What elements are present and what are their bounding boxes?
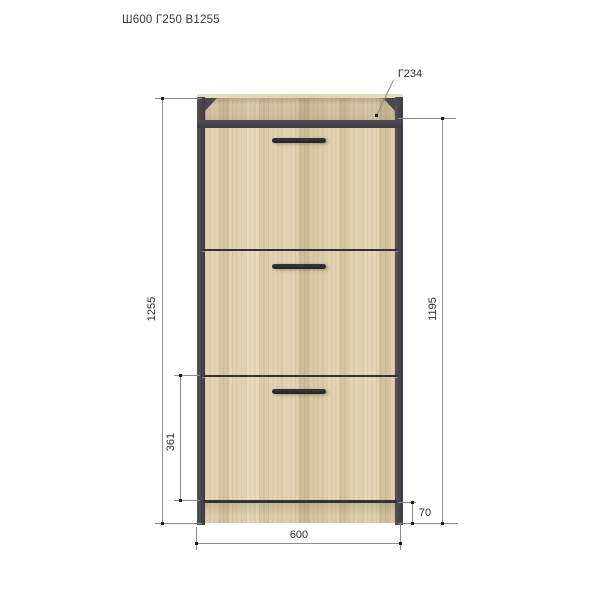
dim-label-total-height: 1255 xyxy=(146,289,158,329)
dim-label-front-height: 1195 xyxy=(427,289,439,329)
ext-line-width-right xyxy=(400,524,401,550)
door-handle-1 xyxy=(272,138,326,143)
dim-line-total-height xyxy=(162,98,163,524)
top-shelf-niche xyxy=(205,98,395,120)
ext-line-section-bottom xyxy=(174,500,200,501)
dim-tick xyxy=(399,542,402,545)
leader-arrow-dot xyxy=(375,114,378,117)
dim-tick xyxy=(411,522,414,525)
dim-label-plinth: 70 xyxy=(410,507,440,519)
dim-tick xyxy=(179,499,182,502)
dim-line-width xyxy=(196,543,401,544)
door-handle-2 xyxy=(272,264,326,269)
top-rail xyxy=(197,120,403,128)
dim-label-bottom-section: 361 xyxy=(165,422,177,462)
dim-tick xyxy=(411,501,414,504)
flip-door-3 xyxy=(205,377,395,500)
dim-tick xyxy=(161,522,164,525)
drawing-title: Ш600 Г250 В1255 xyxy=(122,14,220,26)
ext-line-section-top xyxy=(174,375,200,376)
niche-corner-left xyxy=(205,98,217,111)
niche-corner-right xyxy=(383,98,395,111)
dim-tick xyxy=(179,374,182,377)
flip-door-1 xyxy=(205,128,395,249)
dim-line-bottom-section xyxy=(180,375,181,501)
dim-tick xyxy=(441,117,444,120)
dim-tick xyxy=(441,522,444,525)
flip-door-2 xyxy=(205,251,395,375)
ext-line-width-left xyxy=(196,527,197,550)
dim-label-top-depth: Г234 xyxy=(393,68,427,80)
dim-tick xyxy=(161,97,164,100)
ext-line-front-top xyxy=(398,118,456,119)
plinth-panel xyxy=(205,503,395,523)
door-handle-3 xyxy=(272,389,326,394)
ext-line-front-bottom xyxy=(398,523,458,524)
right-side-panel xyxy=(395,97,403,525)
left-side-panel xyxy=(197,97,205,525)
dim-tick xyxy=(195,542,198,545)
drawing-canvas: Ш600 Г250 В1255 1255 361 xyxy=(0,0,600,600)
dim-line-front-height xyxy=(442,118,443,524)
dim-label-width: 600 xyxy=(279,529,319,541)
